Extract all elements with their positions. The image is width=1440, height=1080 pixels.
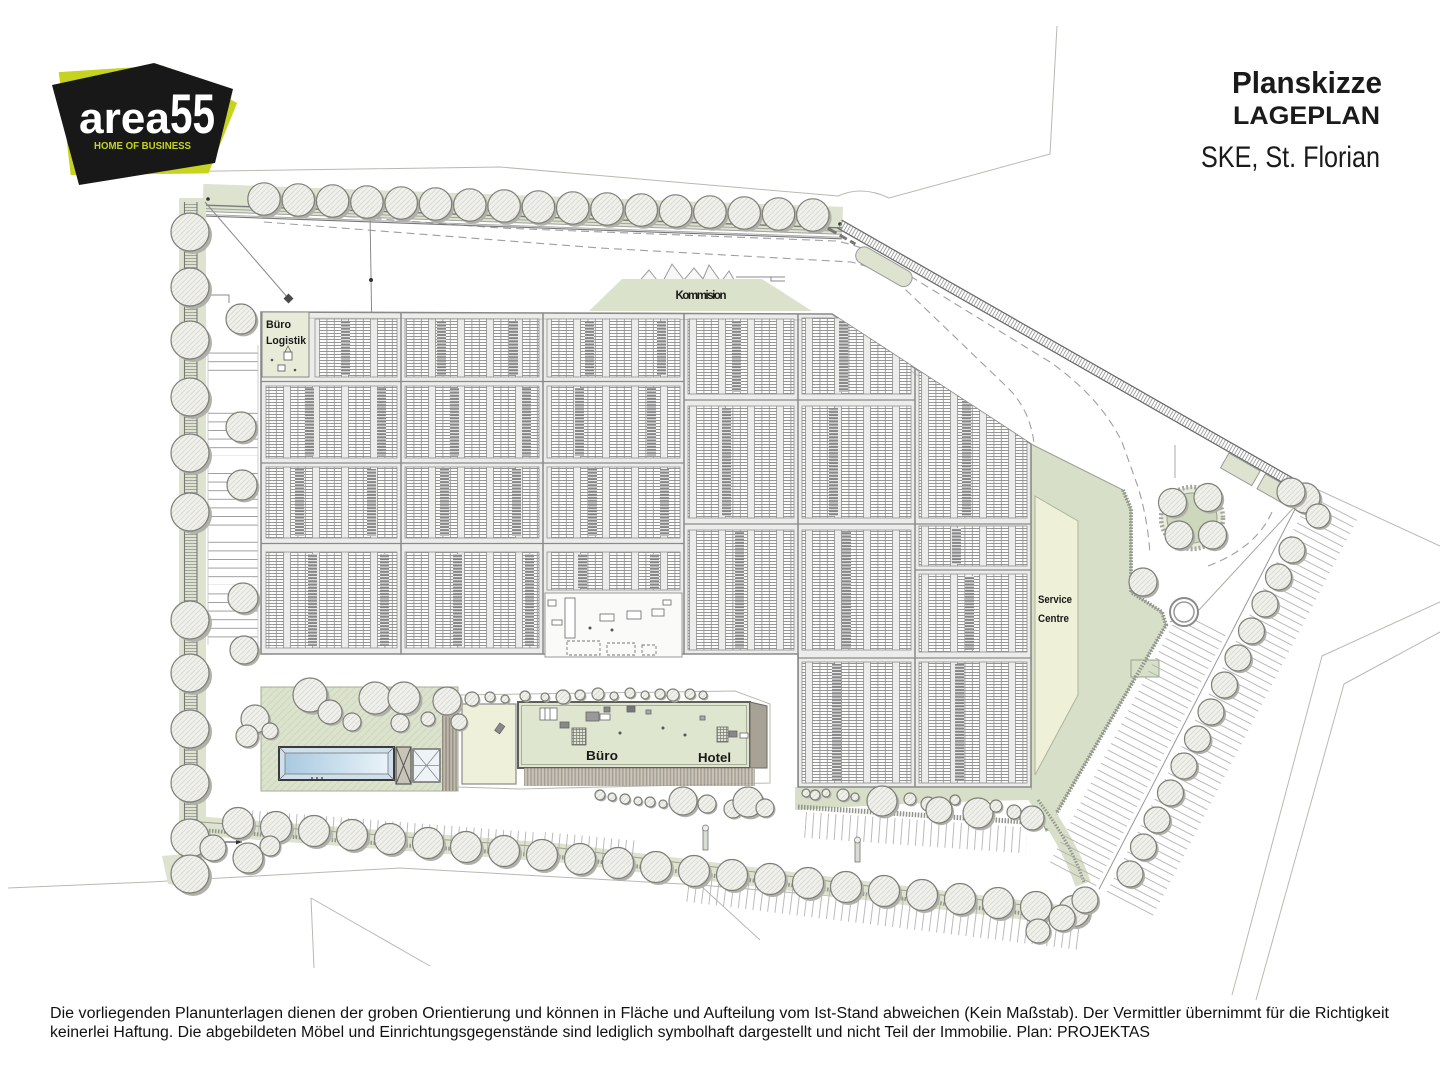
svg-text:Kommision: Kommision	[676, 290, 727, 302]
svg-text:Hotel: Hotel	[698, 751, 731, 765]
svg-text:Büro: Büro	[586, 749, 618, 763]
svg-text:HOME OF BUSINESS: HOME OF BUSINESS	[94, 141, 192, 152]
svg-text:Die vorliegenden Planunterlage: Die vorliegenden Planunterlagen dienen d…	[50, 1005, 1390, 1022]
svg-text:SKE, St. Florian: SKE, St. Florian	[1201, 141, 1380, 174]
svg-text:LAGEPLAN: LAGEPLAN	[1233, 102, 1380, 130]
svg-text:Centre: Centre	[1038, 613, 1069, 625]
svg-text:Büro: Büro	[266, 319, 291, 331]
svg-text:area: area	[79, 94, 171, 143]
svg-text:Logistik: Logistik	[266, 335, 307, 347]
svg-text:55: 55	[170, 82, 215, 145]
svg-text:Planskizze: Planskizze	[1232, 65, 1382, 100]
svg-text:keinerlei Haftung. Die abgebil: keinerlei Haftung. Die abgebildeten Möbe…	[50, 1024, 1150, 1041]
svg-text:Service: Service	[1038, 594, 1072, 606]
